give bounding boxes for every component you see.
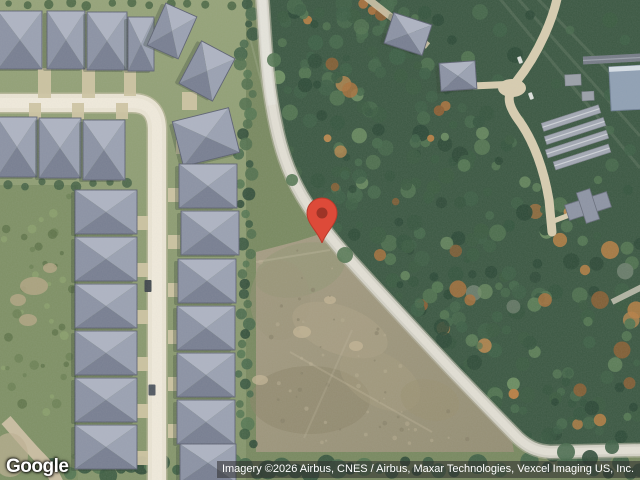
attribution-bar: Imagery ©2026 Airbus, CNES / Airbus, Max… — [217, 461, 640, 478]
attribution-text: Imagery ©2026 Airbus, CNES / Airbus, Max… — [222, 463, 634, 475]
map-viewport[interactable]: Google Imagery ©2026 Airbus, CNES / Airb… — [0, 0, 640, 480]
map-pin-icon[interactable] — [305, 195, 339, 243]
pin-inner-dot — [317, 208, 328, 219]
google-logo[interactable]: Google — [6, 456, 68, 478]
pin-glyph — [305, 195, 339, 243]
pin-body — [307, 198, 337, 243]
